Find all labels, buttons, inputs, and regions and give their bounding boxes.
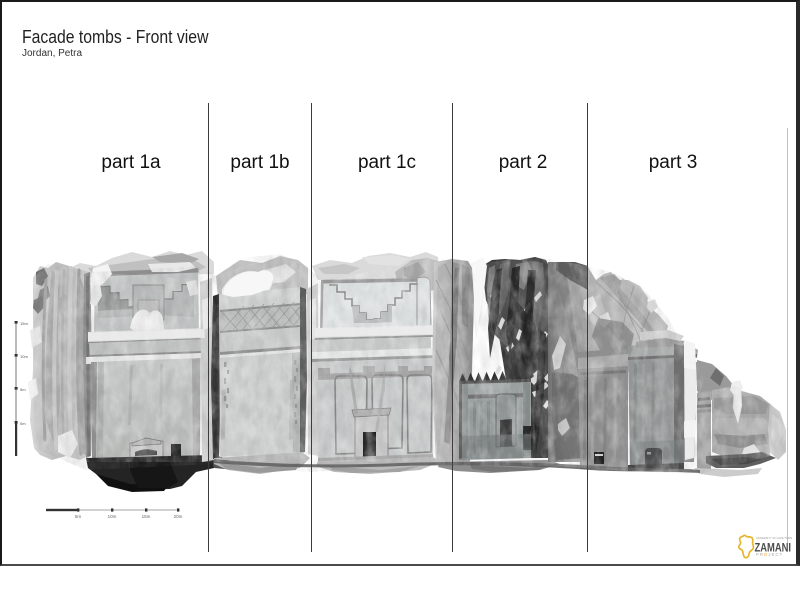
svg-text:15m: 15m [20, 321, 28, 326]
svg-text:5m: 5m [20, 387, 26, 392]
svg-text:15m: 15m [142, 514, 151, 519]
svg-text:UNIVERSITY OF CAPE TOWN: UNIVERSITY OF CAPE TOWN [756, 536, 792, 540]
svg-text:10m: 10m [108, 514, 117, 519]
svg-text:20m: 20m [174, 514, 183, 519]
svg-text:0m: 0m [20, 421, 26, 426]
svg-text:10m: 10m [20, 354, 28, 359]
svg-text:5m: 5m [75, 514, 82, 519]
svg-text:PROJECT: PROJECT [756, 552, 783, 557]
